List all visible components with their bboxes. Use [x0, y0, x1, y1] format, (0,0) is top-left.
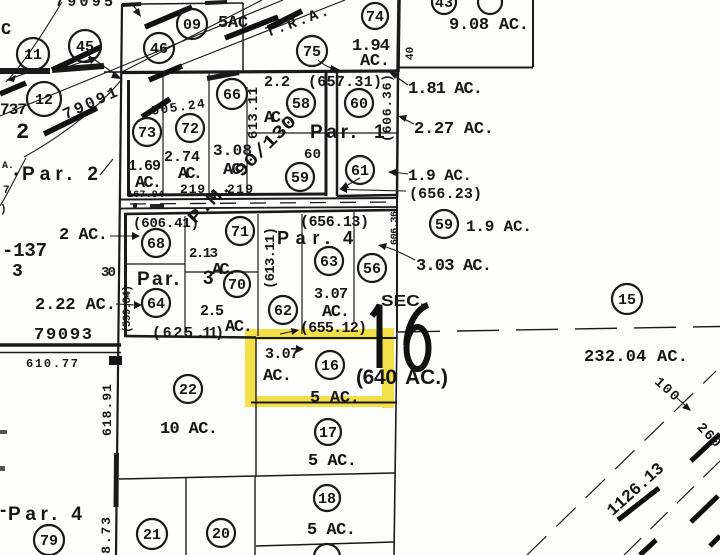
svg-text:167.94: 167.94	[127, 190, 164, 201]
svg-text:79: 79	[40, 533, 58, 550]
svg-text:3.07: 3.07	[265, 346, 299, 363]
svg-text:2.13: 2.13	[189, 246, 218, 262]
svg-text:58: 58	[292, 96, 310, 113]
svg-text:(656.23): (656.23)	[409, 186, 482, 203]
svg-text:63: 63	[320, 254, 338, 271]
svg-text:.11): .11)	[196, 325, 224, 342]
svg-text:64: 64	[147, 296, 165, 313]
svg-text:72: 72	[181, 121, 199, 138]
svg-text:2 AC.: 2 AC.	[59, 226, 108, 245]
svg-text:3.03 AC.: 3.03 AC.	[416, 257, 492, 276]
svg-text:22: 22	[179, 382, 197, 399]
svg-text:7: 7	[3, 185, 10, 197]
svg-text:2.2: 2.2	[264, 74, 290, 91]
svg-text:1.9 AC.: 1.9 AC.	[466, 218, 532, 236]
svg-text:15: 15	[618, 292, 636, 309]
svg-text:3: 3	[12, 262, 23, 282]
svg-text:75: 75	[303, 44, 321, 61]
svg-text:60: 60	[304, 147, 321, 163]
svg-text:11: 11	[24, 47, 42, 64]
svg-text:737: 737	[0, 101, 27, 119]
svg-text:56: 56	[363, 261, 381, 278]
svg-text:71: 71	[231, 224, 249, 241]
svg-text:10 AC.: 10 AC.	[160, 420, 218, 439]
svg-text:(640: (640	[356, 366, 397, 389]
svg-text:17: 17	[319, 425, 337, 442]
svg-text:59: 59	[435, 217, 453, 234]
svg-text:62: 62	[274, 303, 292, 320]
svg-text:20: 20	[212, 526, 230, 543]
svg-text:30: 30	[101, 265, 116, 281]
svg-text:A.: A.	[2, 161, 14, 172]
svg-text:613.11: 613.11	[246, 87, 262, 139]
svg-text:5 AC.: 5 AC.	[307, 521, 356, 540]
svg-text:-: -	[0, 500, 6, 521]
svg-text:21: 21	[143, 527, 161, 544]
svg-text:606.36: 606.36	[390, 211, 401, 245]
svg-text:79093: 79093	[34, 326, 92, 345]
svg-text:2.22 AC.: 2.22 AC.	[35, 296, 116, 315]
svg-text:5 AC.: 5 AC.	[308, 452, 357, 471]
svg-text:1.81 AC.: 1.81 AC.	[408, 80, 483, 99]
svg-text:): )	[0, 204, 7, 216]
svg-text:9.08 AC.: 9.08 AC.	[449, 16, 529, 35]
svg-text:4: 4	[343, 228, 353, 248]
svg-text:60: 60	[350, 96, 368, 113]
svg-text:43: 43	[435, 0, 453, 12]
svg-text:(657.31): (657.31)	[308, 74, 382, 91]
svg-text:3: 3	[203, 268, 214, 289]
svg-text:AC.: AC.	[360, 52, 390, 71]
svg-text:79095: 79095	[55, 0, 113, 11]
svg-text:2: 2	[16, 120, 29, 145]
svg-text:(625: (625	[152, 325, 193, 342]
svg-text:16: 16	[321, 358, 339, 375]
svg-text:(606.41): (606.41)	[133, 216, 199, 232]
svg-text:(656.13): (656.13)	[300, 214, 369, 231]
svg-text:61: 61	[351, 163, 369, 180]
svg-text:40: 40	[405, 47, 417, 60]
svg-text:AC.: AC.	[212, 261, 237, 280]
svg-text:(599.84): (599.84)	[122, 285, 134, 333]
svg-text:1.9 AC.: 1.9 AC.	[408, 167, 472, 185]
svg-text:5AC.: 5AC.	[218, 14, 258, 33]
svg-text:18: 18	[318, 491, 336, 508]
svg-text:Par. 4: Par. 4	[8, 504, 82, 525]
svg-text:1: 1	[374, 122, 385, 143]
svg-text:45: 45	[76, 39, 94, 56]
svg-text:09: 09	[183, 17, 201, 34]
svg-text:2.5: 2.5	[200, 303, 224, 320]
svg-text:3.07: 3.07	[314, 286, 348, 303]
svg-text:59: 59	[291, 170, 309, 187]
svg-text:Par. 2: Par. 2	[22, 164, 98, 185]
svg-text:68: 68	[147, 236, 165, 253]
svg-text:2.27 AC.: 2.27 AC.	[414, 120, 494, 139]
svg-text:46: 46	[150, 41, 168, 58]
svg-text:219: 219	[180, 182, 205, 197]
svg-text:(655.12): (655.12)	[300, 320, 367, 337]
svg-text:232.04 AC.: 232.04 AC.	[584, 348, 688, 367]
svg-text:73: 73	[138, 125, 156, 142]
svg-text:-137: -137	[2, 240, 47, 262]
svg-text:C.: C.	[1, 21, 13, 40]
svg-text:74: 74	[366, 9, 384, 26]
svg-text:1.69: 1.69	[128, 158, 161, 175]
svg-text:12: 12	[35, 92, 53, 109]
svg-text:66: 66	[223, 87, 241, 104]
svg-text:5 AC.: 5 AC.	[310, 389, 360, 408]
svg-text:AC.: AC.	[225, 318, 253, 337]
svg-text:2.74: 2.74	[164, 149, 200, 166]
svg-text:AC.: AC.	[263, 367, 292, 386]
